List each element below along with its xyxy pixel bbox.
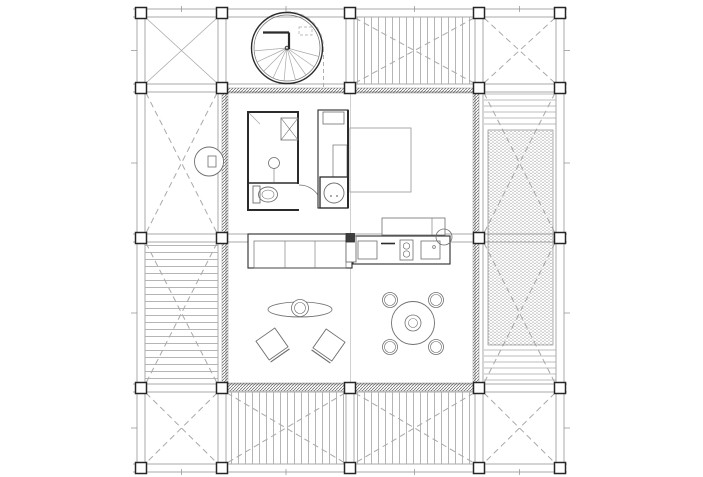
coffee-table-bowl xyxy=(292,300,309,317)
column xyxy=(217,8,228,19)
column xyxy=(136,233,147,244)
column xyxy=(217,83,228,94)
dining-table xyxy=(392,302,435,345)
toilet-bowl-inner xyxy=(262,190,274,199)
porch-fixture xyxy=(195,147,224,176)
column xyxy=(345,8,356,19)
bed xyxy=(350,128,411,192)
column xyxy=(555,233,566,244)
sofa xyxy=(248,234,352,268)
column xyxy=(345,463,356,474)
column xyxy=(136,8,147,19)
column xyxy=(474,8,485,19)
column xyxy=(345,83,356,94)
center-column xyxy=(346,234,355,243)
deck-C1 xyxy=(354,17,475,84)
column xyxy=(217,463,228,474)
column xyxy=(555,383,566,394)
column xyxy=(217,233,228,244)
planted-screen-panel xyxy=(488,130,553,345)
column xyxy=(136,463,147,474)
column xyxy=(345,383,356,394)
plan-layer xyxy=(131,6,570,475)
deck-C4 xyxy=(354,392,475,464)
deck-B4 xyxy=(226,392,346,464)
faucet-dot xyxy=(330,195,332,197)
floor-plan-canvas xyxy=(0,0,703,477)
shower-drain xyxy=(269,158,280,169)
column xyxy=(555,463,566,474)
toilet-bowl xyxy=(259,187,278,202)
column xyxy=(474,233,485,244)
column xyxy=(217,383,228,394)
armchair xyxy=(256,328,288,360)
column xyxy=(555,83,566,94)
column xyxy=(555,8,566,19)
faucet-dot xyxy=(336,195,338,197)
column xyxy=(474,383,485,394)
desk xyxy=(382,218,445,235)
armchair xyxy=(313,329,345,361)
stair-landing-dashed xyxy=(299,27,312,35)
stair-tread xyxy=(264,48,287,71)
shower-corner-mark xyxy=(249,113,260,124)
column xyxy=(136,383,147,394)
column xyxy=(474,83,485,94)
column xyxy=(136,83,147,94)
column xyxy=(474,463,485,474)
floor-plan-drawing xyxy=(0,0,703,477)
